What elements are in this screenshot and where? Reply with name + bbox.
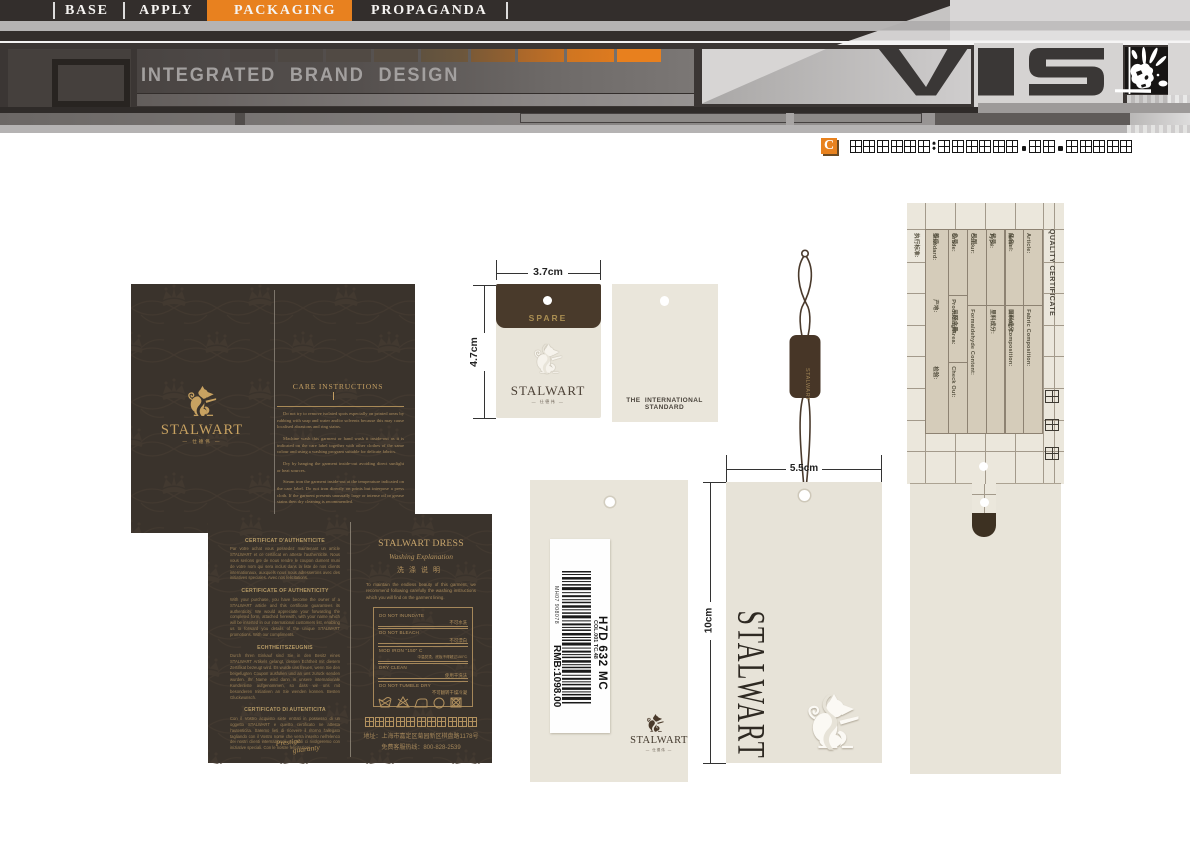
- svg-text:STALWART: STALWART: [804, 368, 810, 401]
